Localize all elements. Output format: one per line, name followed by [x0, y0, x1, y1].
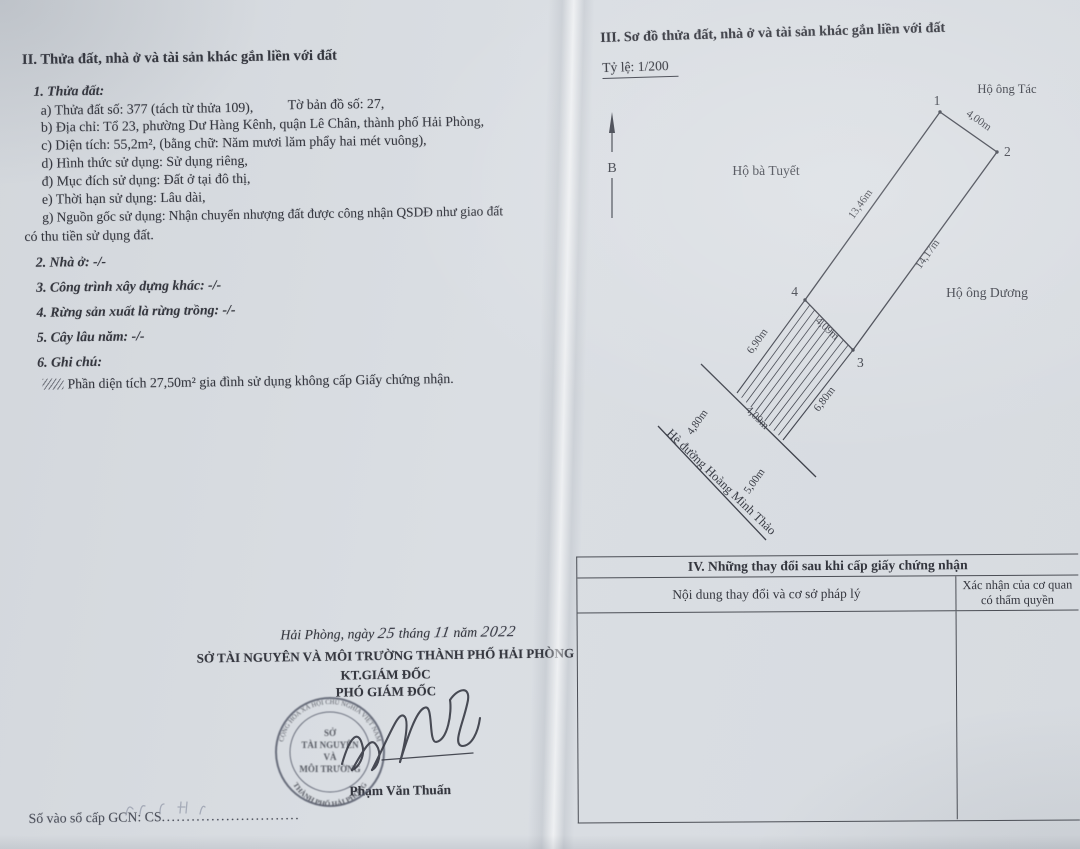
vertex-3: 3	[857, 355, 864, 370]
gcn-label: Số vào sổ cấp GCN: CS	[28, 809, 161, 826]
gcn-dotted-line: ............................	[161, 807, 300, 824]
changes-table-divider	[956, 611, 958, 819]
scanned-land-certificate: II. Thửa đất, nhà ở và tài sản khác gắn …	[0, 0, 1080, 849]
north-label: B	[607, 161, 616, 176]
construction-line: 3. Công trình xây dựng khác: -/-	[36, 277, 221, 296]
map-sheet-line: Tờ bản đồ số: 27,	[288, 96, 385, 113]
neighbor-left: Hộ bà Tuyết	[732, 163, 799, 178]
cadastral-sketch: B Hộ ông Tác Hộ bà Tuyết Hộ ông Dương 1 …	[575, 72, 1080, 557]
signer-name: Phạm Văn Thuấn	[310, 782, 490, 800]
measure-sidewalk-left: 4,80m	[685, 407, 711, 437]
hatch-legend-icon	[42, 378, 63, 389]
col-authority-confirm: Xác nhận của cơ quan có thẩm quyền	[955, 575, 1078, 610]
measure-2-3: 14,17m	[913, 237, 943, 271]
neighbor-top: Hộ ông Tác	[977, 82, 1037, 96]
changes-table-body	[578, 610, 1080, 821]
changes-table: IV. Những thay đổi sau khi cấp giấy chứn…	[576, 553, 1080, 823]
parcel-number-line: a) Thửa đất số: 377 (tách từ thửa 109),	[41, 100, 254, 119]
house-line: 2. Nhà ở: -/-	[36, 254, 106, 271]
use-origin-line-2: có thu tiền sử dụng đất.	[24, 227, 154, 245]
agency-line: SỞ TÀI NGUYÊN VÀ MÔI TRƯỜNG THÀNH PHỐ HẢ…	[175, 645, 595, 666]
measure-1-2: 4,00m	[964, 108, 994, 134]
measure-1-4: 13,46m	[846, 187, 875, 221]
use-form-line: d) Hình thức sử dụng: Sử dụng riêng,	[41, 153, 248, 172]
use-purpose-line: đ) Mục đích sử dụng: Đất ở tại đô thị,	[42, 171, 251, 190]
changes-table-title: IV. Những thay đổi sau khi cấp giấy chứn…	[577, 554, 1078, 578]
date-day-handwritten: 25	[376, 625, 396, 643]
area-line: c) Diện tích: 55,2m², (bằng chữ: Năm mươ…	[41, 132, 427, 153]
pho-giam-doc: PHÓ GIÁM ĐỐC	[176, 681, 596, 702]
use-term-line: e) Thời hạn sử dụng: Lâu dài,	[42, 189, 206, 207]
neighbor-right: Hộ ông Dương	[946, 285, 1028, 300]
note-text: Phần diện tích 27,50m² gia đình sử dụng …	[67, 371, 453, 391]
vertex-4: 4	[791, 284, 798, 299]
date-place: Hải Phòng, ngày	[280, 626, 374, 642]
gcn-entry-line: Số vào sổ cấp GCN: CS...................…	[28, 807, 300, 827]
notes-subheading: 6. Ghi chú:	[37, 354, 102, 371]
vertex-1: 1	[934, 93, 941, 108]
forest-line: 4. Rừng sản xuất là rừng trồng: -/-	[36, 302, 235, 321]
perennial-line: 5. Cây lâu năm: -/-	[37, 328, 145, 346]
vertex-2: 2	[1004, 144, 1011, 159]
section2-heading: II. Thửa đất, nhà ở và tài sản khác gắn …	[22, 48, 337, 69]
measure-sidewalk-right: 5,00m	[742, 466, 768, 496]
date-nam: năm	[453, 625, 477, 640]
parcel-boundary	[805, 112, 997, 350]
changes-table-header-row: Nội dung thay đổi và cơ sở pháp lý Xác n…	[577, 575, 1078, 613]
col-change-content: Nội dung thay đổi và cơ sở pháp lý	[577, 576, 955, 612]
date-year-handwritten: 2022	[479, 623, 517, 641]
date-month-handwritten: 11	[432, 624, 451, 642]
street-name: Hè đường Hoàng Minh Thảo	[664, 426, 779, 538]
parcel-subheading: 1. Thửa đất:	[33, 83, 104, 100]
date-line: Hải Phòng, ngày 25 tháng 11 năm 2022	[208, 622, 588, 645]
hatch-right-edge	[783, 350, 853, 440]
note-line: Phần diện tích 27,50m² gia đình sử dụng …	[42, 371, 453, 393]
vertex-markers	[803, 110, 998, 351]
date-thang: tháng	[399, 625, 431, 640]
